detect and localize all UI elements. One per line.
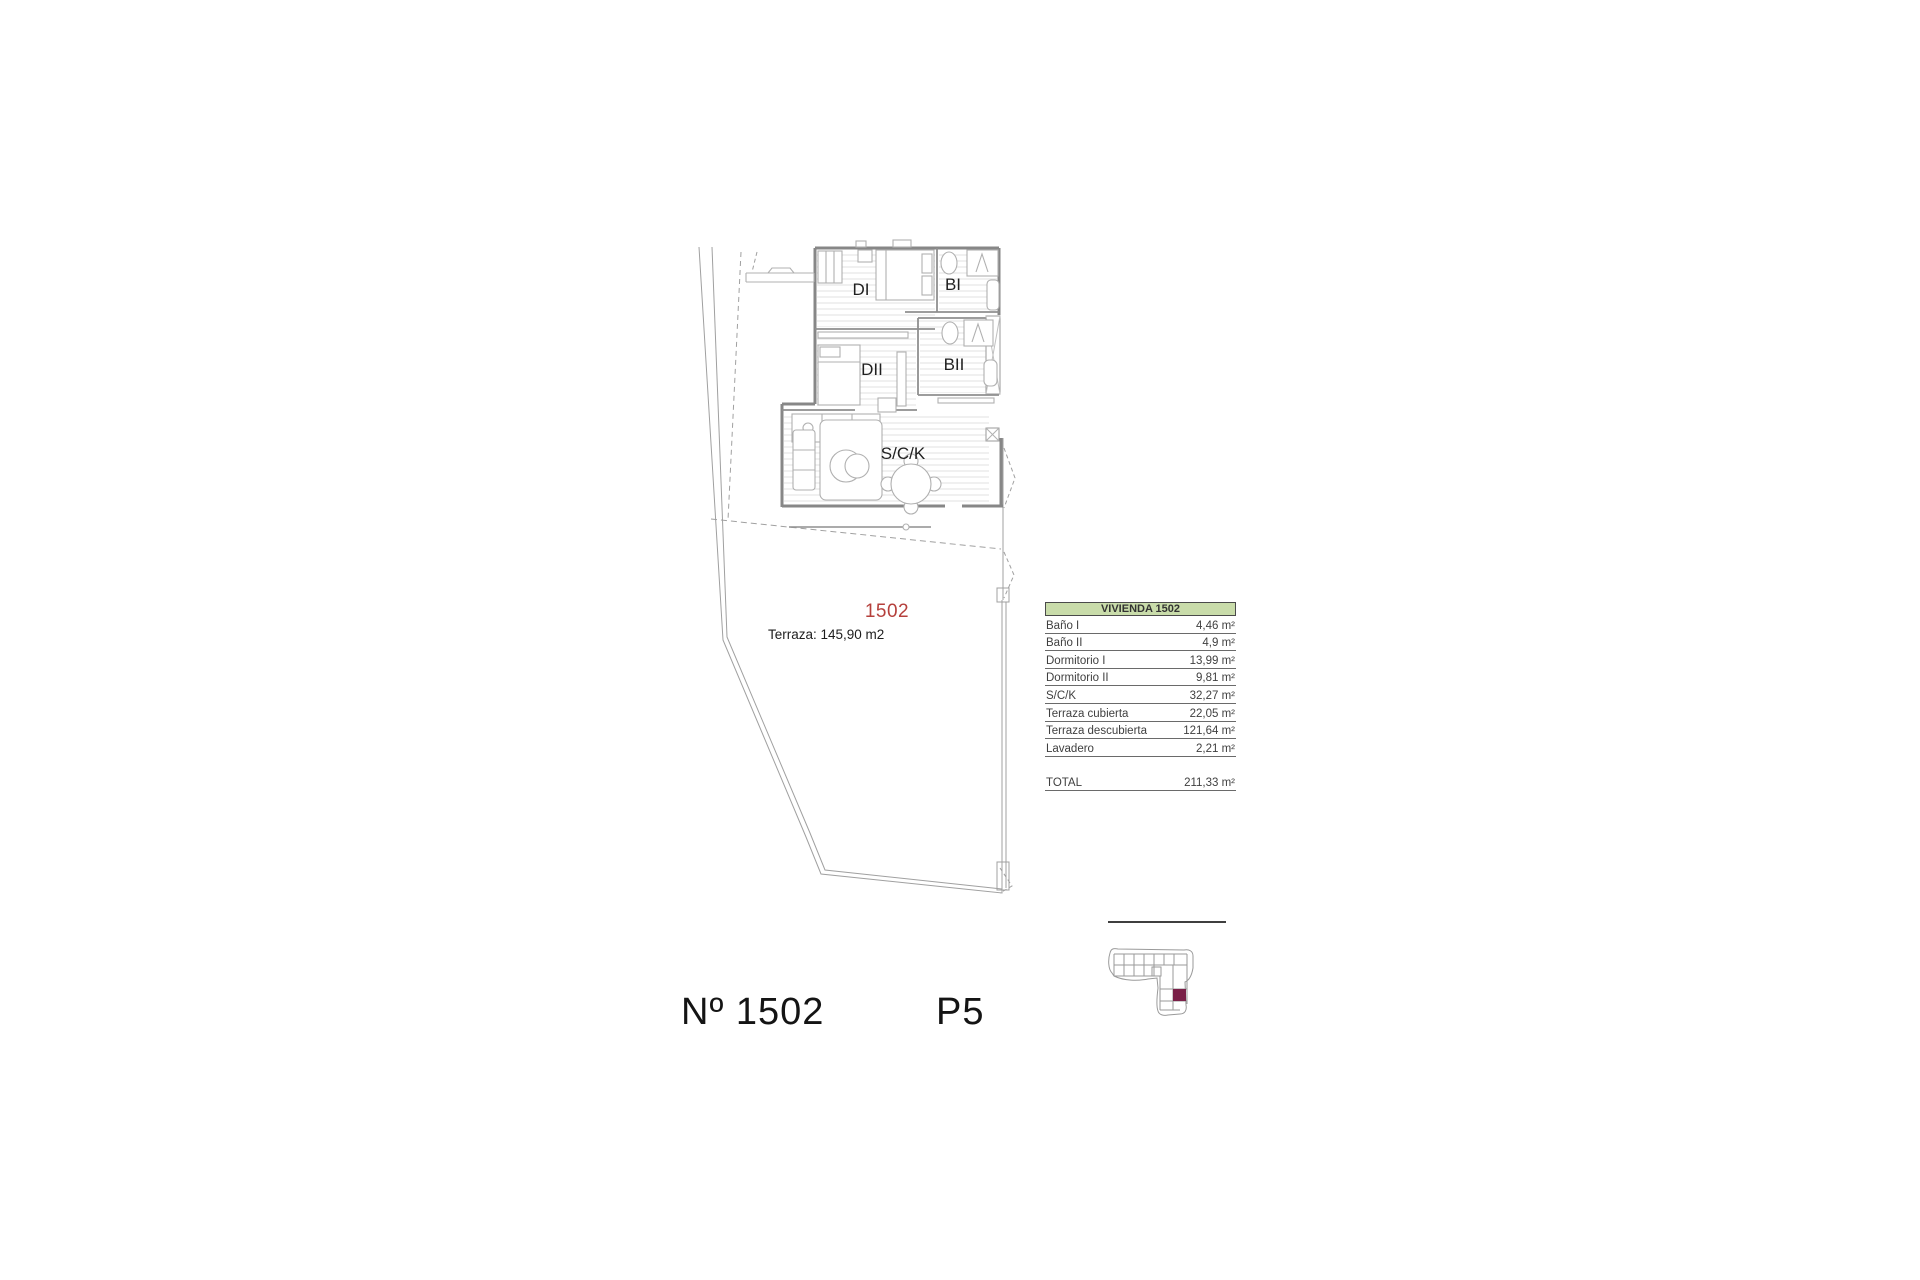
row-value: 9,81 m² — [1196, 672, 1235, 684]
row-label: Baño II — [1046, 637, 1082, 649]
row-value: 2,21 m² — [1196, 743, 1235, 755]
table-row: Dormitorio I 13,99 m² — [1045, 651, 1236, 669]
keyplan-highlighted-unit — [1173, 989, 1186, 1001]
terrace-area-note: Terraza: 145,90 m2 — [768, 627, 884, 642]
row-value: 121,64 m² — [1183, 725, 1235, 737]
building-key-plan — [1100, 944, 1200, 1018]
room-label-bi: BI — [945, 275, 961, 294]
room-label-bii: BII — [944, 355, 965, 374]
table-row: Terraza cubierta 22,05 m² — [1045, 704, 1236, 722]
area-table: VIVIENDA 1502 Baño I 4,46 m² Baño II 4,9… — [1045, 602, 1236, 791]
footer-unit-number: Nº 1502 — [681, 991, 824, 1034]
table-row: Baño I 4,46 m² — [1045, 616, 1236, 634]
row-label: Baño I — [1046, 620, 1079, 632]
room-label-dii: DII — [861, 360, 883, 379]
table-total-row: TOTAL 211,33 m² — [1045, 774, 1236, 792]
row-label: Terraza cubierta — [1046, 708, 1128, 720]
table-row: Lavadero 2,21 m² — [1045, 739, 1236, 757]
footer-floor-label: P5 — [936, 991, 984, 1034]
row-label: Dormitorio I — [1046, 655, 1105, 667]
row-label: Lavadero — [1046, 743, 1094, 755]
row-value: 4,46 m² — [1196, 620, 1235, 632]
row-value: 22,05 m² — [1190, 708, 1235, 720]
table-row: Dormitorio II 9,81 m² — [1045, 669, 1236, 687]
total-label: TOTAL — [1046, 777, 1082, 789]
row-label: S/C/K — [1046, 690, 1076, 702]
room-label-sck: S/C/K — [881, 444, 926, 463]
row-value: 32,27 m² — [1190, 690, 1235, 702]
row-label: Dormitorio II — [1046, 672, 1109, 684]
floorplan-drawing: DI BI DII BII S/C/K — [0, 0, 1920, 1280]
table-row: Terraza descubierta 121,64 m² — [1045, 722, 1236, 740]
table-row: S/C/K 32,27 m² — [1045, 686, 1236, 704]
table-row: Baño II 4,9 m² — [1045, 634, 1236, 652]
row-label: Terraza descubierta — [1046, 725, 1147, 737]
unit-number-red: 1502 — [852, 601, 922, 623]
total-value: 211,33 m² — [1184, 777, 1235, 789]
keyplan-separator-line — [1108, 921, 1226, 923]
area-table-header: VIVIENDA 1502 — [1045, 602, 1236, 616]
room-label-di: DI — [853, 280, 870, 299]
row-value: 4,9 m² — [1202, 637, 1235, 649]
row-value: 13,99 m² — [1190, 655, 1235, 667]
